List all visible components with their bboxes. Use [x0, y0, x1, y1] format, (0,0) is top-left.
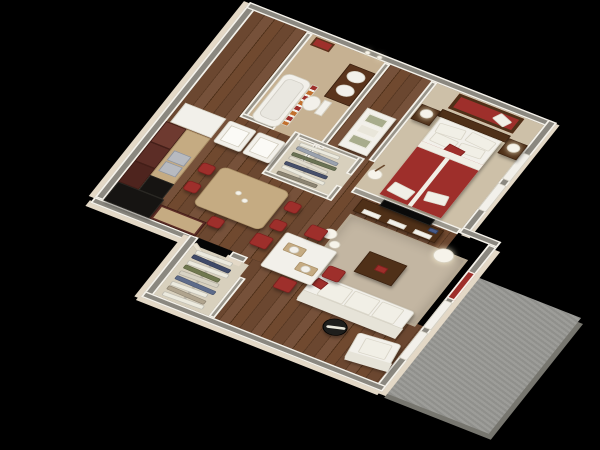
mirror-pillow-reflection [492, 113, 513, 128]
floor-plan [36, 2, 600, 450]
console-blue-decor [428, 227, 439, 234]
drum-white-stripe [326, 325, 346, 330]
apartment-render-canvas [0, 0, 600, 450]
wall-step [459, 227, 502, 248]
coffee-table-decor [374, 265, 388, 274]
